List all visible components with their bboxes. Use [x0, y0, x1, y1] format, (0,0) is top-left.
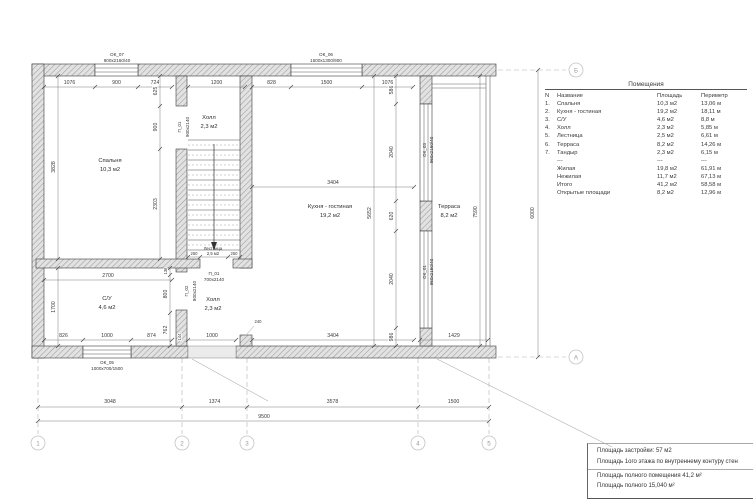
- row-name: ---: [557, 157, 657, 165]
- row-perimeter: 18,11 м: [701, 108, 747, 116]
- row-perimeter: ---: [701, 157, 747, 165]
- window-ok05: [83, 346, 131, 358]
- door-tag-p01-bottom: П_01: [209, 271, 220, 276]
- row-num: [545, 165, 557, 173]
- row-name: Холл: [557, 124, 657, 132]
- dim-label: 138: [163, 267, 168, 275]
- row-name: С/У: [557, 116, 657, 124]
- row-name: Лестница: [557, 132, 657, 140]
- opening-labels: ОК_07 900х2160/40 ОК_06 1500х1300/900 ОК…: [91, 52, 434, 371]
- dim-label: 250: [191, 251, 199, 256]
- notes-top-group: Площадь застройки: 57 м2 Площадь 1ого эт…: [588, 446, 753, 470]
- grid-bubble-b: Б: [569, 63, 583, 77]
- window-size-ok07: 900х2160/40: [104, 58, 131, 63]
- dim-label: 2040: [389, 146, 395, 158]
- dim-label: 144: [177, 333, 182, 341]
- room-area-bedroom: 10,3 м2: [100, 167, 120, 173]
- dim-label: 874: [147, 333, 156, 339]
- grid-bubble-2: 2: [175, 436, 189, 450]
- row-perimeter: 14,26 м: [701, 141, 747, 149]
- rooms-table-header: N Название Площадь Периметр: [545, 92, 747, 100]
- row-area: 19,2 м2: [657, 108, 701, 116]
- window-size-ok03: 960х2160/40: [429, 136, 434, 163]
- row-name: Кухня - гостиная: [557, 108, 657, 116]
- dim-label: 1374: [209, 399, 221, 405]
- dim-label: 1429: [448, 333, 460, 339]
- dim-label: 2700: [102, 273, 114, 279]
- entrance-opening: [188, 346, 236, 358]
- svg-text:4: 4: [416, 441, 420, 448]
- row-name: Тандыр: [557, 149, 657, 157]
- svg-text:1: 1: [36, 441, 40, 448]
- row-area: 41,2 м2: [657, 181, 701, 189]
- windows: [83, 64, 432, 358]
- door-size-p01-bottom: 700х2140: [204, 277, 225, 282]
- floor-plan-drawing: 1076 900 724 1200 828 1500 1076 3828 625…: [0, 0, 753, 502]
- row-perimeter: 8,8 м: [701, 116, 747, 124]
- note-built-area: Площадь застройки: 57 м2: [597, 446, 753, 457]
- dim-label: 724: [151, 80, 160, 86]
- table-row: 3. С/У 4,6 м2 8,8 м: [545, 116, 747, 124]
- table-row: 7. Тандыр 2,3 м2 6,15 м: [545, 149, 747, 157]
- row-area: 2,3 м2: [657, 124, 701, 132]
- dimension-labels: 1076 900 724 1200 828 1500 1076 3828 625…: [51, 80, 536, 420]
- row-name: Нежилая: [557, 173, 657, 181]
- window-tag-ok07: ОК_07: [110, 52, 124, 57]
- dim-label: 3404: [327, 333, 339, 339]
- row-perimeter: 5,85 м: [701, 124, 747, 132]
- dim-label: 1000: [206, 333, 218, 339]
- table-row: Итого 41,2 м2 58,58 м: [545, 181, 747, 189]
- row-name: Итого: [557, 181, 657, 189]
- row-num: 5.: [545, 132, 557, 140]
- row-area: 2,5 м2: [657, 132, 701, 140]
- door-tag-p01-top: П_01: [177, 121, 182, 132]
- grid-bubble-a: А: [569, 350, 583, 364]
- row-num: [545, 189, 557, 197]
- room-label-bedroom: Спальня: [98, 158, 121, 164]
- grid-bubble-4: 4: [411, 436, 425, 450]
- grid-bubble-3: 3: [240, 436, 254, 450]
- note-full-area: Площадь полного помещения 41,2 м²: [597, 471, 753, 482]
- dim-label: 240: [255, 319, 263, 324]
- svg-text:2: 2: [180, 441, 184, 448]
- dim-label: 900: [153, 123, 159, 132]
- window-size-ok05: 1000х700/1500: [91, 366, 123, 371]
- row-num: [545, 157, 557, 165]
- room-label-terrace: Терраса: [438, 204, 461, 210]
- window-tag-ok01: ОК_01: [422, 265, 427, 279]
- grid-axes: [38, 70, 566, 434]
- room-label-hall-bottom: Холл: [206, 297, 220, 303]
- row-num: 7.: [545, 149, 557, 157]
- dim-label: 620: [389, 212, 395, 221]
- dim-label: 2040: [389, 273, 395, 285]
- header-area: Площадь: [657, 92, 701, 100]
- room-area-bathroom: 4,6 м2: [99, 305, 116, 311]
- window-size-ok06: 1500х1300/900: [310, 58, 342, 63]
- dim-label: 2303: [153, 198, 159, 210]
- drawing-sheet: 1076 900 724 1200 828 1500 1076 3828 625…: [0, 0, 753, 502]
- dim-label: 7590: [473, 206, 479, 218]
- grid-bubble-1: 1: [31, 436, 45, 450]
- row-area: ---: [657, 157, 701, 165]
- room-label-hall-top: Холл: [202, 115, 216, 121]
- row-name: Открытые площади: [557, 189, 657, 197]
- row-area: 2,3 м2: [657, 149, 701, 157]
- dim-label: 5652: [367, 207, 373, 219]
- room-area-hall-top: 2,3 м2: [201, 124, 218, 130]
- row-area: 10,3 м2: [657, 100, 701, 108]
- row-area: 4,6 м2: [657, 116, 701, 124]
- row-num: 3.: [545, 116, 557, 124]
- row-perimeter: 13,06 м: [701, 100, 747, 108]
- row-name: Спальня: [557, 100, 657, 108]
- table-row: Открытые площади 8,2 м2 12,96 м: [545, 189, 747, 197]
- note-area-secondary: Площадь полного 15,040 м²: [597, 481, 753, 492]
- dim-label: 800: [163, 290, 169, 299]
- window-ok07: [95, 64, 138, 76]
- dim-label: 1700: [51, 301, 57, 313]
- room-label-kitchen: Кухня - гостиная: [308, 204, 352, 210]
- rooms-table-rows: 1. Спальня 10,3 м2 13,06 м 2. Кухня - го…: [545, 100, 747, 197]
- window-size-ok01: 960х2160/40: [429, 258, 434, 285]
- dim-label: 625: [153, 87, 159, 96]
- dim-label: 828: [267, 80, 276, 86]
- svg-text:5: 5: [487, 441, 491, 448]
- row-perimeter: 12,96 м: [701, 189, 747, 197]
- svg-text:Б: Б: [574, 68, 578, 75]
- dim-label: 1500: [321, 80, 333, 86]
- header-perimeter: Периметр: [701, 92, 747, 100]
- row-name: Терраса: [557, 141, 657, 149]
- window-tag-ok05: ОК_05: [100, 360, 114, 365]
- dim-label: 3578: [327, 399, 339, 405]
- window-ok06: [291, 64, 362, 76]
- terrace-edge: [432, 76, 490, 346]
- door-size-p02: 800х2140: [192, 280, 197, 301]
- svg-text:3: 3: [245, 441, 249, 448]
- row-num: 1.: [545, 100, 557, 108]
- rooms-table: Помещения N Название Площадь Периметр 1.…: [545, 80, 747, 197]
- row-perimeter: 58,58 м: [701, 181, 747, 189]
- door-tag-p02: П_02: [184, 285, 189, 296]
- dimension-lines: [36, 68, 612, 447]
- dim-label: 9500: [258, 414, 270, 420]
- notes-block: Площадь застройки: 57 м2 Площадь 1ого эт…: [587, 443, 753, 499]
- row-perimeter: 61,91 м: [701, 165, 747, 173]
- row-num: [545, 181, 557, 189]
- grid-bubbles: 1 2 3 4 5 Б А: [31, 63, 583, 450]
- table-row: 4. Холл 2,3 м2 5,85 м: [545, 124, 747, 132]
- row-num: 6.: [545, 141, 557, 149]
- header-num: N: [545, 92, 557, 100]
- row-num: 4.: [545, 124, 557, 132]
- room-labels: Спальня 10,3 м2 Холл 2,3 м2 Кухня - гост…: [98, 115, 461, 312]
- row-perimeter: 6,61 м: [701, 132, 747, 140]
- dim-label: 250: [231, 251, 239, 256]
- note-floor1-area: Площадь 1ого этажа по внутреннему контур…: [597, 457, 753, 468]
- row-perimeter: 6,15 м: [701, 149, 747, 157]
- dim-label: 900: [112, 80, 121, 86]
- dim-label: 1200: [211, 80, 223, 86]
- door-size-p01-top: 900х2140: [185, 116, 190, 137]
- dim-label: 586: [389, 86, 395, 95]
- dim-label: 3048: [104, 399, 116, 405]
- table-row: Жилая 19,8 м2 61,91 м: [545, 165, 747, 173]
- table-row: --- --- ---: [545, 157, 747, 165]
- dim-label: 6000: [530, 207, 536, 219]
- window-tag-ok06: ОК_06: [319, 52, 333, 57]
- dim-label: 1000: [101, 333, 113, 339]
- dim-label: 826: [59, 333, 68, 339]
- table-row: 6. Терраса 8,2 м2 14,26 м: [545, 141, 747, 149]
- dim-label: 762: [163, 326, 169, 335]
- row-area: 8,2 м2: [657, 189, 701, 197]
- dim-label: 3828: [51, 161, 57, 173]
- room-area-kitchen: 19,2 м2: [320, 213, 340, 219]
- table-row: Нежилая 11,7 м2 67,13 м: [545, 173, 747, 181]
- room-area-stairs: 2,5 м2: [207, 251, 220, 256]
- window-tag-ok03: ОК_03: [422, 143, 427, 157]
- dim-label: 986: [389, 333, 395, 342]
- row-num: 2.: [545, 108, 557, 116]
- row-area: 19,8 м2: [657, 165, 701, 173]
- room-area-terrace: 8,2 м2: [441, 213, 458, 219]
- row-num: [545, 173, 557, 181]
- header-name: Название: [557, 92, 657, 100]
- dim-label: 1076: [64, 80, 76, 86]
- dim-label: 1500: [448, 399, 460, 405]
- dim-label: 3404: [327, 180, 339, 186]
- dim-label: 1076: [382, 80, 394, 86]
- row-name: Жилая: [557, 165, 657, 173]
- table-row: 5. Лестница 2,5 м2 6,61 м: [545, 132, 747, 140]
- room-label-bathroom: С/У: [102, 296, 112, 302]
- rooms-table-title: Помещения: [545, 80, 747, 90]
- stairs: [188, 140, 240, 250]
- row-area: 11,7 м2: [657, 173, 701, 181]
- grid-bubble-5: 5: [482, 436, 496, 450]
- table-row: 2. Кухня - гостиная 19,2 м2 18,11 м: [545, 108, 747, 116]
- table-row: 1. Спальня 10,3 м2 13,06 м: [545, 100, 747, 108]
- row-perimeter: 67,13 м: [701, 173, 747, 181]
- room-area-hall-bottom: 2,3 м2: [205, 306, 222, 312]
- row-area: 8,2 м2: [657, 141, 701, 149]
